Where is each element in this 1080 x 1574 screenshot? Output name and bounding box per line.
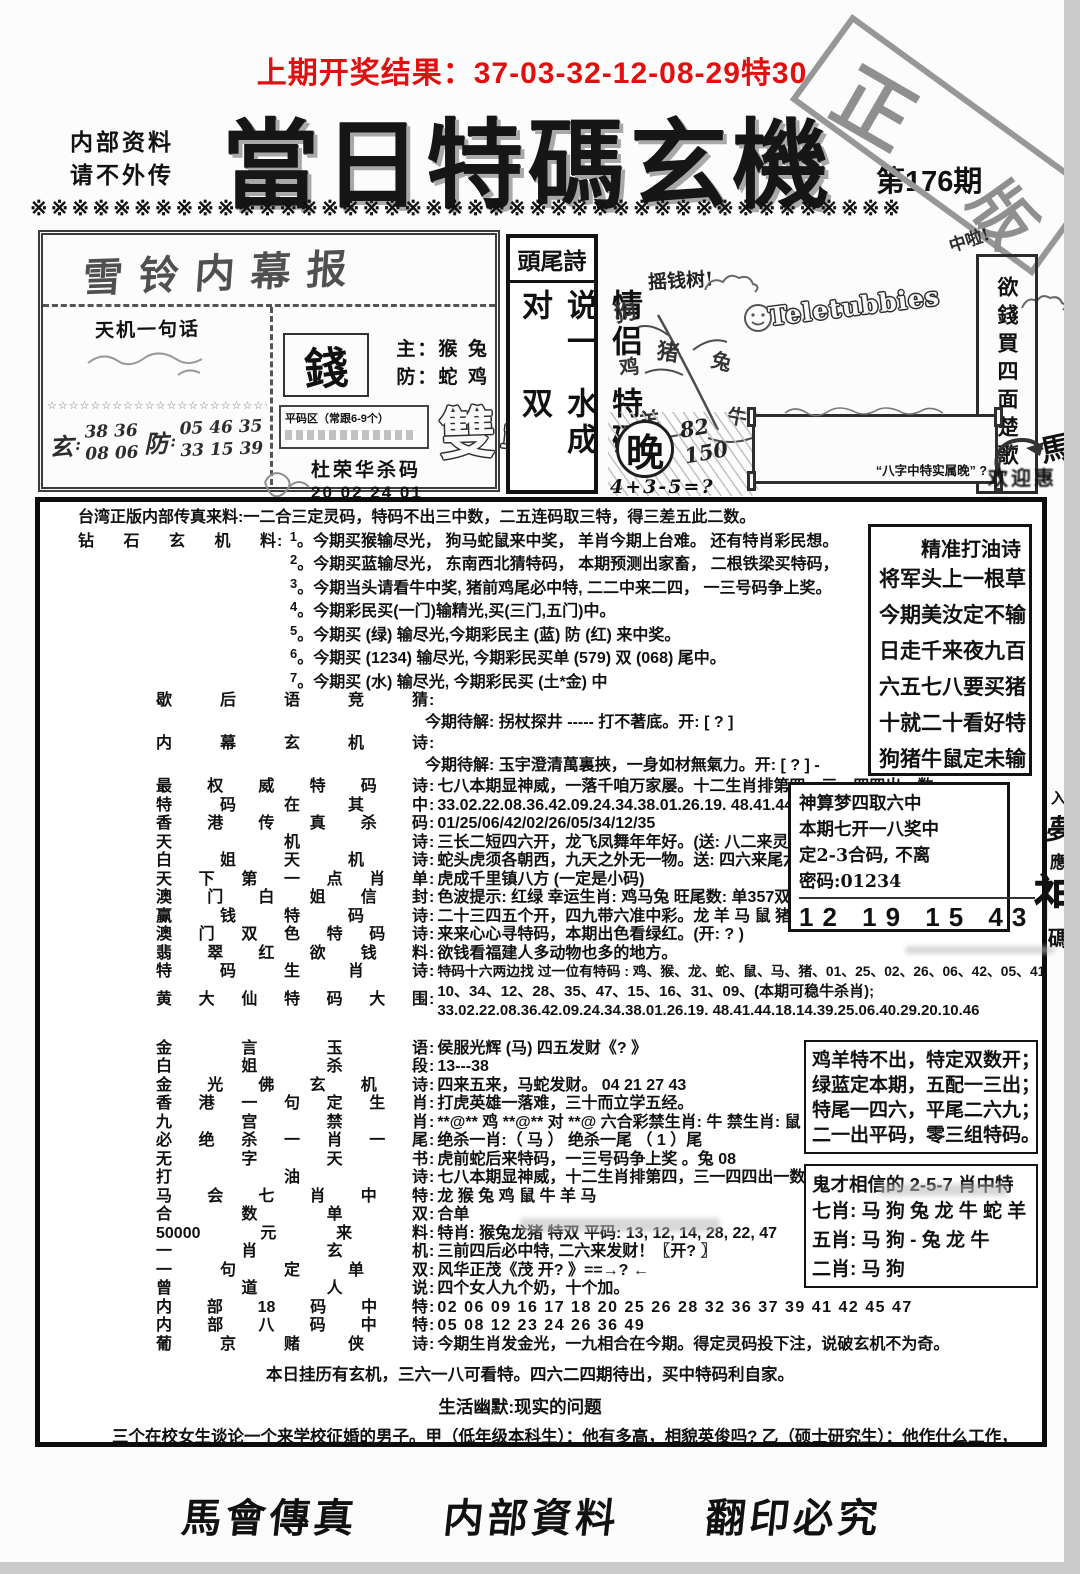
svg-text:兔: 兔	[708, 347, 734, 375]
teletubbies-text: Teletubbies	[767, 282, 941, 332]
row-text: 13---38	[437, 1058, 489, 1075]
footer-item: 内部資料	[441, 1486, 623, 1544]
row-label: 葡京赌侠诗	[156, 1336, 428, 1355]
doggerel-line: 十就二十看好特	[879, 706, 1021, 742]
vchar: 神	[1033, 873, 1064, 923]
accurate-doggerel-box: 精准打油诗 将军头上一根草 今期美汝定不输 日走千来夜九百 六五七八要买猪 十就…	[868, 524, 1032, 776]
colon: :	[429, 871, 434, 888]
cloud-doodle	[700, 268, 760, 298]
diamond-label: 钻石玄机料	[78, 533, 276, 552]
colon: :	[429, 1095, 434, 1112]
diamond-item-text: 。今期买蓝输尽光， 东南西北猜特码， 本期预测出家畜， 二根铁梁买特码，	[297, 556, 838, 573]
row-text: 三前四后必中特, 二六来发财！〖开? 〗	[437, 1243, 716, 1260]
diamond-item-text: 。今期买 (1234) 输尽光, 今期彩民买单 (579) 双 (068) 尾中…	[297, 650, 726, 667]
doggerel-line: 狗猪牛鼠定未输	[879, 742, 1021, 778]
evening-circle: 晚	[616, 420, 674, 478]
dream-vertical-chars: 入 夢 應 神 碼	[1035, 785, 1064, 929]
colon: :	[429, 1188, 434, 1205]
row-text: 四个女人九个奶，十个加。	[437, 1280, 629, 1297]
pingma-label: 平码区（常跟6-9个）	[285, 410, 423, 426]
chicken-goat-line: 特尾一四六，平尾二六九；	[812, 1098, 1030, 1123]
row-label: 一肖玄机	[156, 1243, 428, 1262]
billboard-doodle: “八字中特实属晚” ?	[752, 414, 998, 484]
footer-item: 馬會傳真	[179, 1486, 361, 1544]
row-label: 金言玉语	[156, 1040, 428, 1059]
genius-line: 二肖: 马 狗	[812, 1255, 1030, 1284]
colon: :	[429, 1077, 434, 1094]
svg-text:猪: 猪	[655, 338, 680, 366]
huang-da-xian-row: 黄大仙特码大围: 10、34、12、28、35、47、15、16、31、09、(…	[156, 982, 1042, 1020]
billboard-scribble	[783, 405, 963, 419]
colon: :	[429, 778, 434, 795]
internal-note-line1: 内部资料	[70, 126, 174, 159]
footer: 馬會傳真 内部資料 翻印必究	[0, 1486, 1064, 1544]
money-panel: 錢 主：猴 兔 防：蛇 鸡 平码区（常跟6-9个） 雙 單 杜荣华杀码 20 0…	[273, 307, 495, 485]
print-smudge	[878, 1184, 1008, 1196]
colon: :	[429, 1262, 434, 1279]
row-label: 最权威特码诗	[156, 778, 428, 797]
content-row: 内部18码中特:02 06 09 16 17 18 20 25 26 28 32…	[156, 1299, 1042, 1318]
money-char: 錢	[302, 332, 349, 398]
humor-title: 生活幽默:现实的问题	[78, 1394, 1042, 1419]
row-label: 白姐天机诗	[156, 852, 428, 871]
dream-line: 定2-3合码, 不离	[799, 843, 1035, 869]
head-tail-poem-title: 頭尾詩	[510, 238, 594, 283]
row-text: 二十三四五个开，四九带六准中彩。龙 羊 马 鼠 猪	[437, 908, 791, 925]
colon: :	[429, 908, 434, 925]
row-label: 特码在其中	[156, 797, 428, 816]
inside-poem-label: 内幕玄机诗	[156, 735, 428, 754]
colon: :	[429, 889, 434, 906]
row-label: 合数单双	[156, 1206, 428, 1225]
doggerel-line: 日走千来夜九百	[879, 634, 1021, 670]
riddle-solve-text: 今期待解: 拐杖探井 ----- 打不著底。开: [ ? ]	[425, 714, 733, 731]
svg-text:狗: 狗	[612, 298, 639, 327]
fang-char: 防	[144, 423, 169, 459]
internal-note: 内部资料 请不外传	[70, 126, 174, 192]
row-label: 一句定单双	[156, 1262, 428, 1281]
pingma-box: 平码区（常跟6-9个）	[279, 405, 429, 449]
dream-line: 本期七开一八奖中	[799, 817, 1035, 843]
row-label: 内部八码中特	[156, 1317, 428, 1336]
row-text: 今期生肖发金光，一九相合在今期。得定灵码投下注，说破玄机不为奇。	[437, 1336, 949, 1353]
colon: :	[429, 735, 434, 752]
row-label: 白姐杀段	[156, 1058, 428, 1077]
row-label: 香港一句定生肖	[156, 1095, 428, 1114]
colon: :	[429, 797, 434, 814]
inside-poem-solve-text: 今期待解: 玉宇澄清萬裏挾，一身如材無氣力。开: [ ? ] -	[425, 757, 820, 774]
head-tail-poem-box: 頭尾詩 情侣说一对 特码水成双	[506, 234, 598, 494]
row-label: 天下第一点肖单	[156, 871, 428, 890]
row-text: 三长二短四六开，龙飞凤舞年年好。(送: 八二来灵码)	[437, 834, 809, 851]
row-label: 香港传真杀码	[156, 815, 428, 834]
diamond-item-text: 。今期买猴输尽光， 狗马蛇鼠来中奖， 羊肖今期上台难。 还有特肖彩民想。	[297, 533, 838, 550]
row-label: 内部18码中特	[156, 1299, 428, 1318]
evening-numbers: 82 150	[678, 411, 730, 470]
footer-item: 翻印必究	[703, 1486, 885, 1544]
content-row: 葡京赌侠诗:今期生肖发金光，一九相合在今期。得定灵码投下注，说破玄机不为奇。	[156, 1336, 1042, 1355]
row-label: 黄大仙特码大围	[156, 991, 428, 1010]
colon: :	[429, 963, 434, 980]
illegible-numbers	[285, 430, 415, 440]
item-number: 1	[290, 529, 297, 544]
section-gap	[78, 1020, 1042, 1040]
tianji-heading: 天机一句话	[95, 314, 200, 343]
row-label: 九宫禁肖	[156, 1114, 428, 1133]
evening-doodle-group: 晚 82 150 4+3-5=?	[608, 412, 758, 496]
row-text: 特码十六两边找 过一位有特码 : 鸡、猴、龙、蛇、鼠、马、猪、01、25、02、…	[437, 964, 1047, 979]
internal-note-line2: 请不外传	[70, 159, 174, 192]
genius-zodiac-box: 鬼才相信的 2-5-7 肖中特 七肖: 马 狗 兔 龙 牛 蛇 羊 五肖: 马 …	[804, 1164, 1038, 1288]
diamond-item-text: 。今期当头请看牛中奖, 猪前鸡尾必中特, 二二中来二四， 一三号码争上奖。	[297, 580, 831, 597]
billboard-post	[747, 471, 756, 491]
row-text: 风华正茂《茂 开? 》==→? ←	[437, 1262, 649, 1279]
huang-line-2: 33.02.22.08.36.42.09.24.34.38.01.26.19. …	[437, 1001, 979, 1020]
insider-report-title-strip: 雪铃内幕报	[43, 235, 495, 307]
newspaper-page: 上期开奖结果：37-03-32-12-08-29特30 内部资料 请不外传 當日…	[0, 0, 1064, 1562]
content-row: 特码生肖诗:特码十六两边找 过一位有特码 : 鸡、猴、龙、蛇、鼠、马、猪、01、…	[156, 963, 1042, 982]
row-text: 05 08 12 23 24 26 36 49	[437, 1317, 645, 1334]
colon: :	[429, 1206, 434, 1223]
xuan-line2: 08 06	[85, 442, 139, 466]
diamond-item-text: 。今期彩民买(一门)输精光,买(三门,五门)中。	[297, 603, 615, 620]
colon: :	[429, 834, 434, 851]
zhu-fang-lines: 主：猴 兔 防：蛇 鸡	[396, 335, 489, 391]
colon: :	[429, 926, 434, 943]
print-smudge	[520, 1218, 720, 1232]
chicken-goat-line: 鸡羊特不出，特定双数开；	[812, 1048, 1030, 1073]
genius-line: 五肖: 马 狗 - 兔 龙 牛	[812, 1226, 1030, 1255]
row-text: 龙 猴 兔 鸡 鼠 牛 羊 马	[437, 1188, 596, 1205]
chicken-goat-box: 鸡羊特不出，特定双数开； 绿蓝定本期，五配一三出； 特尾一四六，平尾二六九； 二…	[804, 1040, 1038, 1154]
colon: :	[429, 991, 434, 1010]
row-label: 特码生肖诗	[156, 963, 428, 982]
row-label: 金光佛玄机诗	[156, 1077, 428, 1096]
row-label: 赢钱特码诗	[156, 908, 428, 927]
row-label: 必绝杀一肖一尾	[156, 1132, 428, 1151]
billboard-post	[747, 407, 756, 427]
evening-formula: 4+3-5=?	[610, 476, 715, 498]
star-row: ☆☆☆☆☆☆☆☆☆☆☆☆☆☆☆☆☆☆☆☆☆☆	[47, 399, 267, 412]
row-label: 50000元来料	[156, 1225, 428, 1244]
dream-password: 密码:01234	[799, 869, 1035, 895]
row-text: 合单	[437, 1206, 469, 1223]
row-label: 澳门白姐信封	[156, 889, 428, 908]
evening-char: 晚	[626, 422, 664, 477]
row-text: 打虎英雄一落难，三十而立学五经。	[437, 1095, 693, 1112]
dream-numbers: 12 19 15 43	[799, 897, 1035, 933]
zhu-line: 主：猴 兔	[396, 335, 489, 363]
colon: :	[429, 1336, 434, 1353]
row-text: 来来心心寻特码，本期出色看绿红。(开: ? )	[437, 926, 744, 943]
svg-text:鸡: 鸡	[617, 354, 640, 380]
row-text: 虎前蛇后来特码，一三号码争上奖 。兔 08	[437, 1151, 736, 1168]
daily-calendar-line: 本日挂历有玄机，三六一八可看特。四六二四期待出，买中特码利自家。	[78, 1361, 1042, 1385]
row-text: 绝杀一肖:（ 马 ） 绝杀一尾 （ 1 ）尾	[437, 1132, 702, 1149]
fang-line1: 05 46 35	[179, 415, 263, 440]
colon: :	[429, 1299, 434, 1316]
row-label: 澳门双色特码诗	[156, 926, 428, 945]
row-label: 打油诗	[156, 1169, 428, 1188]
colon: :	[429, 1280, 434, 1297]
billboard-caption: “八字中特实属晚” ?	[876, 460, 987, 479]
riddle-label: 歇后语竞猜	[156, 692, 428, 711]
content-row: 内部八码中特:05 08 12 23 24 26 36 49	[156, 1317, 1042, 1336]
colon: :	[429, 1317, 434, 1334]
vchar: 夢	[1044, 808, 1064, 848]
colon: :	[429, 1132, 434, 1149]
xuan-line1: 38 36	[84, 420, 138, 444]
row-text: 虎成千里镇八方 (一定是小码)	[437, 871, 644, 888]
colon: :	[429, 1040, 434, 1057]
print-smudge	[905, 946, 1055, 954]
row-text: 蛇头虎须各朝西，九天之外无一物。送: 四六来尾六	[437, 852, 799, 869]
humor-paragraph: 三个在校女生谈论一个来学校征婚的男子。甲（低年级本科生）：他有多高，相貌英俊吗?…	[78, 1425, 1042, 1447]
tianji-panel: 天机一句话 ☆☆☆☆☆☆☆☆☆☆☆☆☆☆☆☆☆☆☆☆☆☆ 玄: 38 36 08…	[43, 307, 273, 485]
billboard-post	[994, 407, 1003, 427]
taiwan-intro-text: 台湾正版内部传真来料:一二合三定灵码，特码不出三中数，二五连码取三特，得三差五此…	[78, 509, 755, 526]
chicken-goat-line: 绿蓝定本期，五配一三出；	[812, 1073, 1030, 1098]
doggerel-line: 将军头上一根草	[879, 562, 1021, 598]
fang-line2: 33 15 39	[180, 437, 264, 462]
xuan-char: 玄	[48, 426, 73, 462]
huang-line-1: 10、34、12、28、35、47、15、16、31、09、(本期可稳牛杀肖);	[437, 982, 979, 1001]
doggerel-title: 精准打油诗	[879, 533, 1021, 562]
row-text: 色波提示: 红绿 幸运生肖: 鸡马兔 旺尾数: 单357双268	[437, 889, 817, 906]
row-label: 翡翠红欲钱料	[156, 945, 428, 964]
diamond-item-text: 。今期买 (水) 输尽光, 今期彩民买 (土*金) 中	[297, 674, 607, 691]
du-title: 杜荣华杀码	[311, 455, 491, 482]
doggerel-line: 今期美汝定不输	[879, 598, 1021, 634]
handwritten-numbers: 玄: 38 36 08 06 防: 05 46 35 33 15 39	[46, 415, 267, 467]
dream-god-box: 神算梦四取六中 本期七开一八奖中 定2-3合码, 不离 密码:01234 12 …	[788, 782, 1010, 932]
fang-line: 防：蛇 鸡	[396, 363, 489, 391]
row-text: 02 06 09 16 17 18 20 25 26 28 32 36 37 3…	[437, 1299, 912, 1316]
colon: :	[429, 692, 434, 709]
colon: :	[429, 945, 434, 962]
colon: :	[277, 533, 282, 550]
row-text: 01/25/06/42/02/26/05/34/12/35	[437, 815, 655, 832]
genius-line: 七肖: 马 狗 兔 龙 牛 蛇 羊	[812, 1197, 1030, 1226]
colon: :	[429, 1151, 434, 1168]
handwriting-scribble	[83, 343, 233, 383]
row-text: 侯服光辉 (马) 四五发财《? 》	[437, 1040, 647, 1057]
dream-line: 神算梦四取六中	[799, 791, 1035, 817]
doggerel-line: 六五七八要买猪	[879, 670, 1021, 706]
row-label: 天机诗	[156, 834, 428, 853]
colon: :	[429, 1225, 434, 1242]
chicken-goat-line: 二一出平码，零三组特码。	[812, 1123, 1030, 1148]
vchar: 入	[1051, 787, 1064, 808]
colon: :	[429, 1114, 434, 1131]
insider-report-box: 雪铃内幕报 天机一句话 ☆☆☆☆☆☆☆☆☆☆☆☆☆☆☆☆☆☆☆☆☆☆ 玄: 38…	[38, 230, 500, 492]
row-text: **@** 鸡 **@** 对 **@ 六合彩禁生肖: 牛 禁生肖: 鼠	[437, 1114, 800, 1131]
colon: :	[429, 815, 434, 832]
row-text: 欲钱看福建人多动物也多的地方。	[437, 945, 677, 962]
money-char-box: 錢	[283, 333, 369, 397]
row-label: 马会七肖中特	[156, 1188, 428, 1207]
asterisk-divider: ※※※※※※※※※※※※※※※※※※※※※※※※※※※※※※※※※※※※※※※※…	[30, 196, 1040, 221]
row-label: 曾道人说	[156, 1280, 428, 1299]
row-text: 四来五来，马蛇发财。 04 21 27 43	[437, 1077, 686, 1094]
colon: :	[429, 1169, 434, 1186]
insider-report-title: 雪铃内幕报	[81, 236, 365, 304]
row-label: 无字天书	[156, 1151, 428, 1170]
diamond-item-text: 。今期买 (绿) 输尽光,今期彩民主 (蓝) 防 (红) 来中奖。	[297, 627, 680, 644]
colon: :	[429, 1243, 434, 1260]
colon: :	[429, 852, 434, 869]
colon: :	[429, 1058, 434, 1075]
